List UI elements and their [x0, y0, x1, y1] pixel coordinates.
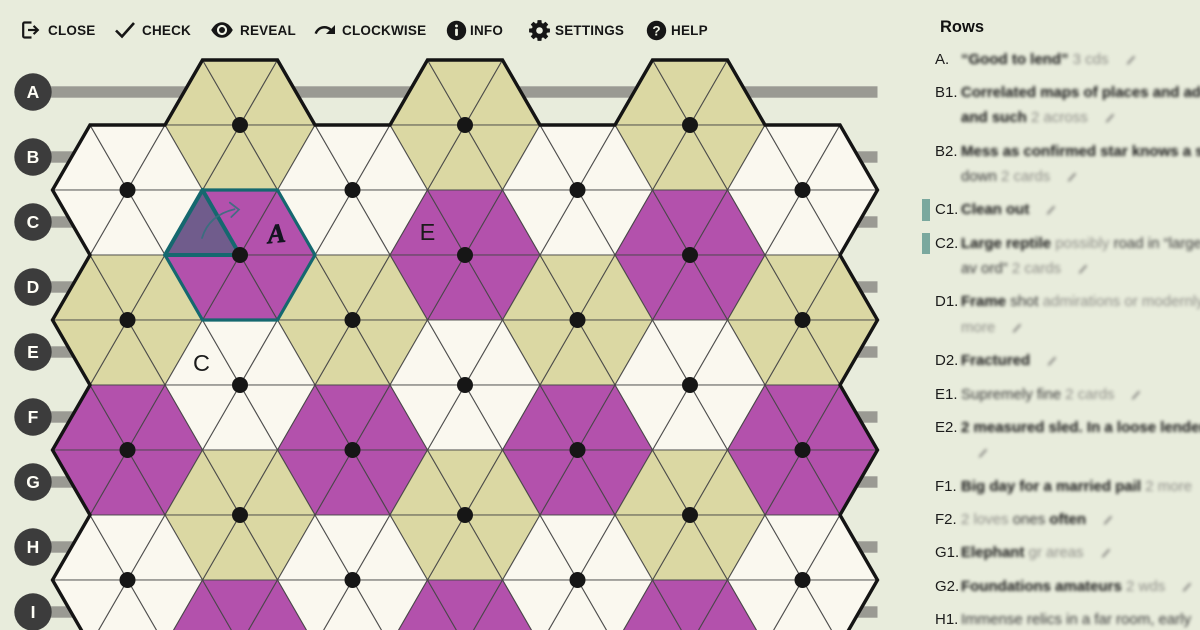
svg-text:I: I [31, 602, 36, 622]
svg-text:E: E [27, 342, 39, 362]
svg-text:C: C [27, 212, 40, 232]
svg-text:B: B [27, 147, 40, 167]
svg-text:H: H [27, 537, 40, 557]
svg-text:E: E [420, 219, 436, 245]
svg-text:D: D [27, 277, 40, 297]
svg-text:?: ? [652, 23, 660, 38]
svg-text:C: C [193, 350, 210, 376]
svg-text:A: A [27, 82, 40, 102]
svg-text:F: F [28, 407, 39, 427]
svg-text:G: G [26, 472, 40, 492]
